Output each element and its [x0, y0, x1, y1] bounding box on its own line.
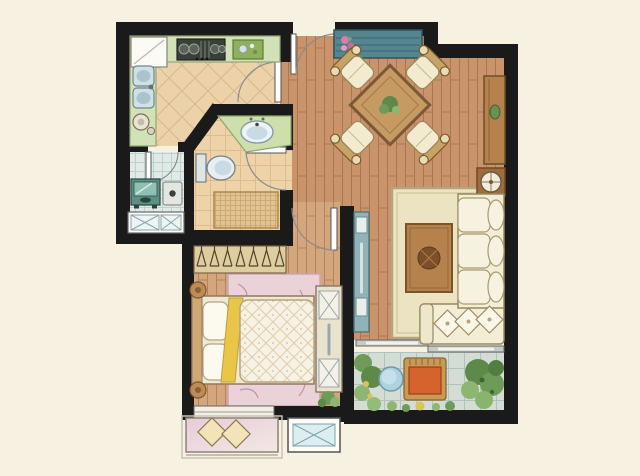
lounge-chair: [404, 358, 446, 400]
bay-window-seat: [182, 416, 282, 458]
round-side-table: [379, 367, 403, 391]
refrigerator: [131, 37, 167, 67]
washing-machine: [131, 179, 160, 209]
cabinet-decor-plant: [490, 105, 500, 119]
double-bed: [192, 296, 314, 384]
wardrobe-closet: [194, 246, 286, 273]
bolster-cushion: [488, 236, 504, 266]
shower-mat: [214, 192, 278, 228]
storage-cabinet: [354, 212, 369, 332]
bed-pillow: [203, 302, 228, 340]
cutting-board: [233, 40, 263, 59]
bolster-cushion: [488, 200, 504, 230]
floor-plan-drawing: [0, 0, 640, 476]
ac-platform: [288, 418, 340, 452]
gas-cooktop: [177, 39, 226, 60]
lamp-side-table: [477, 168, 505, 196]
seat-cushion: [458, 198, 490, 232]
bolster-cushion: [488, 272, 504, 302]
laundry-platform: [128, 212, 184, 233]
tall-dresser: [316, 286, 342, 392]
coffee-table: [406, 224, 452, 292]
floor-plan-stage: [0, 0, 640, 476]
quilted-duvet: [240, 300, 314, 382]
dryer: [163, 182, 182, 205]
seat-cushion: [458, 270, 490, 304]
seat-cushion: [458, 234, 490, 268]
tv-cabinet: [484, 76, 505, 164]
toilet: [196, 154, 235, 182]
